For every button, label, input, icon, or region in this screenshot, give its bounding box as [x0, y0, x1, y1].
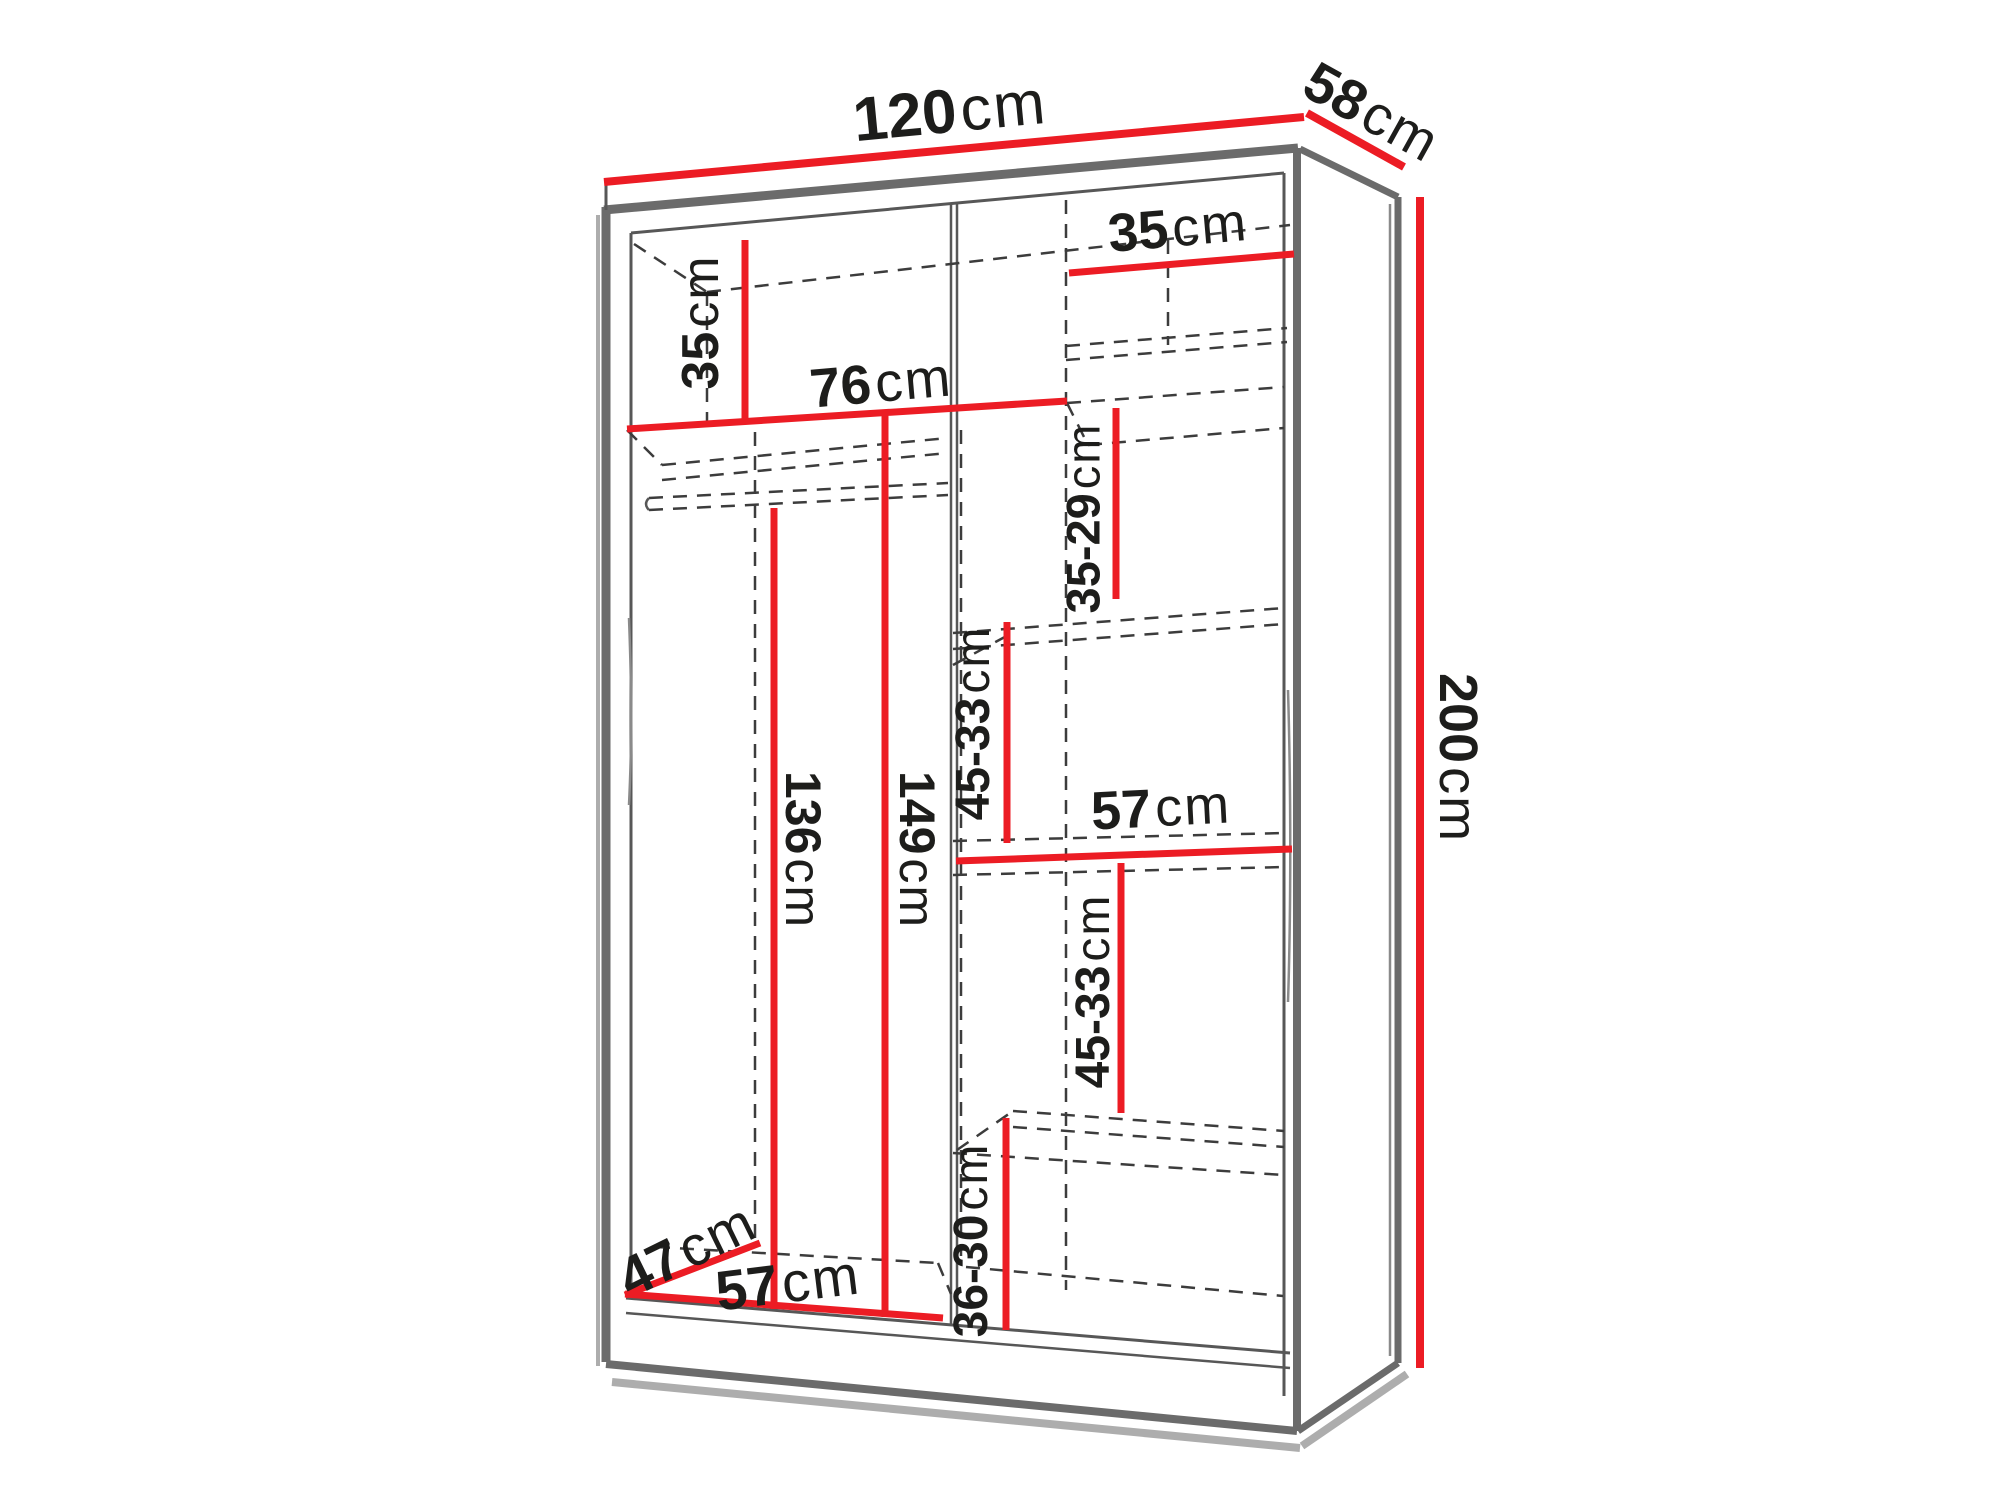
dim-label-right-shelf-width: 57cm	[1090, 777, 1233, 838]
dim-label-right-lower-compartment: 45-33cm	[1070, 894, 1118, 1089]
wardrobe-diagram	[0, 0, 2000, 1500]
dim-label-left-hanging-height: 136cm	[778, 771, 828, 929]
dim-label-right-upper-compartment: 35-29cm	[1060, 423, 1107, 614]
dim-line-right-shelf-width	[956, 849, 1292, 861]
dim-label-left-shelf-width: 76cm	[808, 349, 955, 416]
dim-label-height-right: 200cm	[1431, 673, 1485, 843]
dim-label-left-top-shelf-height: 35cm	[675, 254, 727, 389]
dim-label-left-interior-height: 149cm	[892, 771, 942, 929]
dim-label-right-top-shelf-width: 35cm	[1106, 195, 1250, 261]
left-door-handle	[629, 618, 631, 805]
dim-label-right-bottom-compartment: 36-30cm	[948, 1143, 996, 1338]
side-bottom-edge	[1298, 1363, 1398, 1431]
dim-label-right-middle-compartment: 45-33cm	[950, 626, 998, 821]
plinth-bottom-edge	[606, 1364, 1297, 1431]
